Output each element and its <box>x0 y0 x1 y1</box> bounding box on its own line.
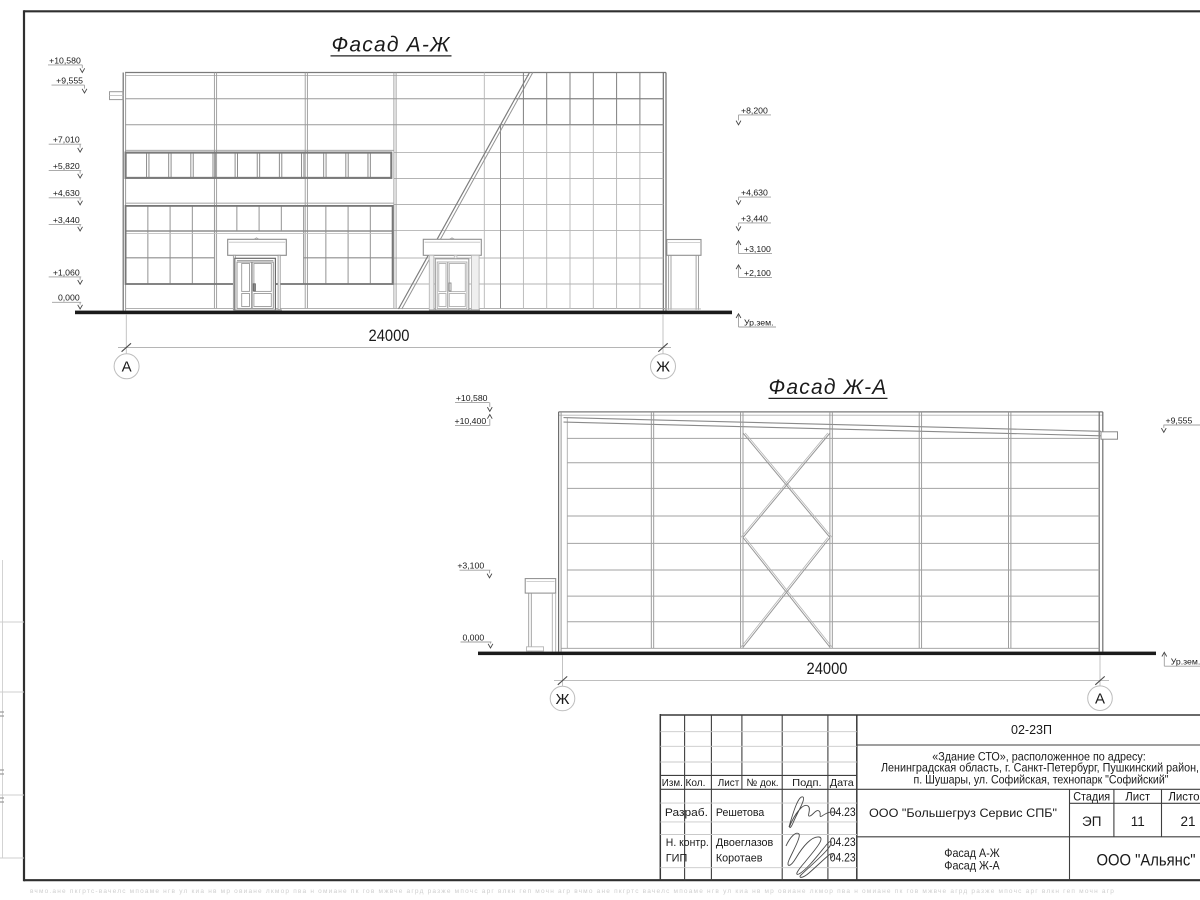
svg-text:+10,580: +10,580 <box>49 55 81 65</box>
svg-text:+10,580: +10,580 <box>456 393 488 403</box>
svg-text:02-23П: 02-23П <box>1011 722 1052 737</box>
svg-text:+9,555: +9,555 <box>1166 415 1193 425</box>
svg-text:А: А <box>122 359 132 376</box>
svg-text:Лист: Лист <box>1125 791 1151 803</box>
svg-text:№ док.: № док. <box>747 777 779 789</box>
svg-text:Двоеглазов: Двоеглазов <box>716 837 774 849</box>
svg-text:+3,440: +3,440 <box>53 215 80 225</box>
svg-text:Стадия: Стадия <box>1073 791 1110 803</box>
svg-text:Кол.: Кол. <box>686 777 706 789</box>
svg-text:+9,555: +9,555 <box>56 76 83 86</box>
svg-text:21: 21 <box>1180 814 1195 829</box>
svg-text:+5,820: +5,820 <box>53 161 80 171</box>
svg-text:Ж: Ж <box>656 359 670 376</box>
svg-text:п. Шушары, ул. Софийская, техн: п. Шушары, ул. Софийская, технопарк "Соф… <box>914 773 1169 787</box>
svg-text:Фасад Ж-А: Фасад Ж-А <box>944 858 1000 872</box>
svg-text:Лист: Лист <box>718 777 740 789</box>
svg-text:А: А <box>1095 691 1105 708</box>
svg-text:Решетова: Решетова <box>716 807 765 819</box>
svg-text:Ур.зем.: Ур.зем. <box>744 317 773 327</box>
svg-text:+3,440: +3,440 <box>741 213 768 223</box>
svg-text:0,000: 0,000 <box>462 632 484 642</box>
svg-text:ООО "Большегруз Сервис СПБ": ООО "Большегруз Сервис СПБ" <box>869 806 1057 820</box>
svg-text:ГИП: ГИП <box>666 852 688 864</box>
svg-text:24000: 24000 <box>369 327 410 345</box>
svg-text:Ж: Ж <box>556 691 570 708</box>
svg-text:Коротаев: Коротаев <box>716 852 763 864</box>
svg-text:ООО "Альянс": ООО "Альянс" <box>1097 851 1196 869</box>
svg-text:+10,400: +10,400 <box>455 416 487 426</box>
svg-text:11: 11 <box>1131 814 1145 829</box>
svg-text:Ур.зем.: Ур.зем. <box>1171 657 1200 667</box>
svg-text:вчмо.ане пкгртс-вачелс мпоаме: вчмо.ане пкгртс-вачелс мпоаме нгв ул киа… <box>30 888 1115 895</box>
svg-text:Фасад Ж-А: Фасад Ж-А <box>768 376 887 399</box>
svg-text:+3,100: +3,100 <box>457 561 484 571</box>
svg-text:Фасад А-Ж: Фасад А-Ж <box>331 34 451 57</box>
svg-text:ЭП: ЭП <box>1082 814 1101 829</box>
svg-text:+7,010: +7,010 <box>53 135 80 145</box>
svg-text:+4,630: +4,630 <box>53 188 80 198</box>
svg-text:+8,200: +8,200 <box>741 105 768 115</box>
svg-text:0,000: 0,000 <box>58 293 80 303</box>
svg-text:Дата: Дата <box>830 777 854 789</box>
svg-text:Изм.: Изм. <box>662 777 683 789</box>
svg-text:Разраб.: Разраб. <box>665 807 708 819</box>
svg-text:+3,100: +3,100 <box>744 244 771 254</box>
svg-text:+2,100: +2,100 <box>744 268 771 278</box>
svg-text:04.23: 04.23 <box>830 837 856 849</box>
svg-text:Подп.: Подп. <box>792 777 822 789</box>
svg-text:+1,060: +1,060 <box>53 267 80 277</box>
svg-text:+4,630: +4,630 <box>741 188 768 198</box>
svg-text:24000: 24000 <box>807 660 848 678</box>
svg-text:04.23: 04.23 <box>830 807 856 819</box>
svg-text:Листов: Листов <box>1168 791 1200 803</box>
svg-text:Н. контр.: Н. контр. <box>666 837 709 849</box>
